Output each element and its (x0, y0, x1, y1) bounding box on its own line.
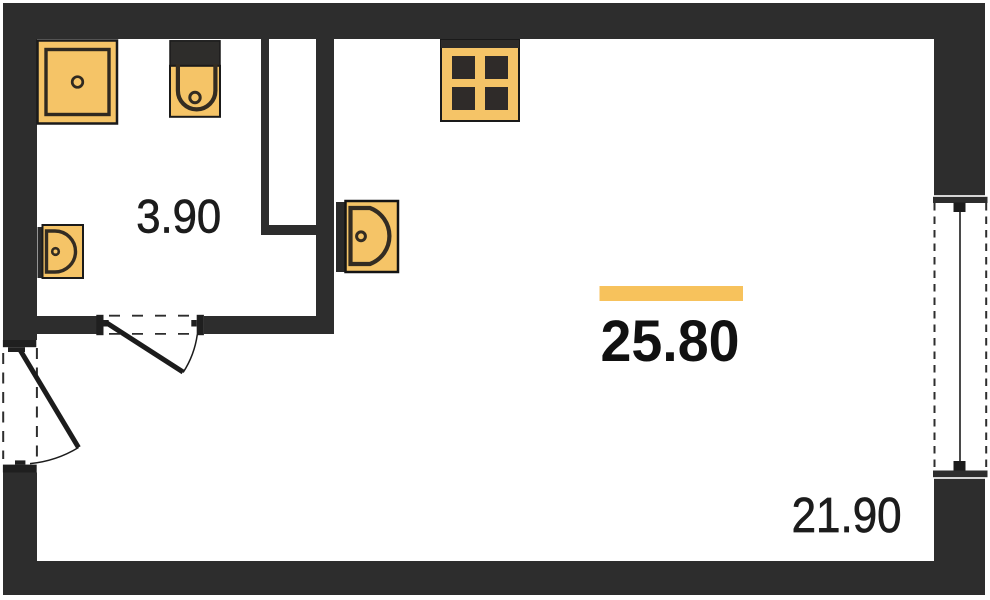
svg-text:21.90: 21.90 (792, 489, 902, 543)
svg-text:25.80: 25.80 (601, 309, 740, 374)
svg-text:3.90: 3.90 (136, 190, 221, 243)
